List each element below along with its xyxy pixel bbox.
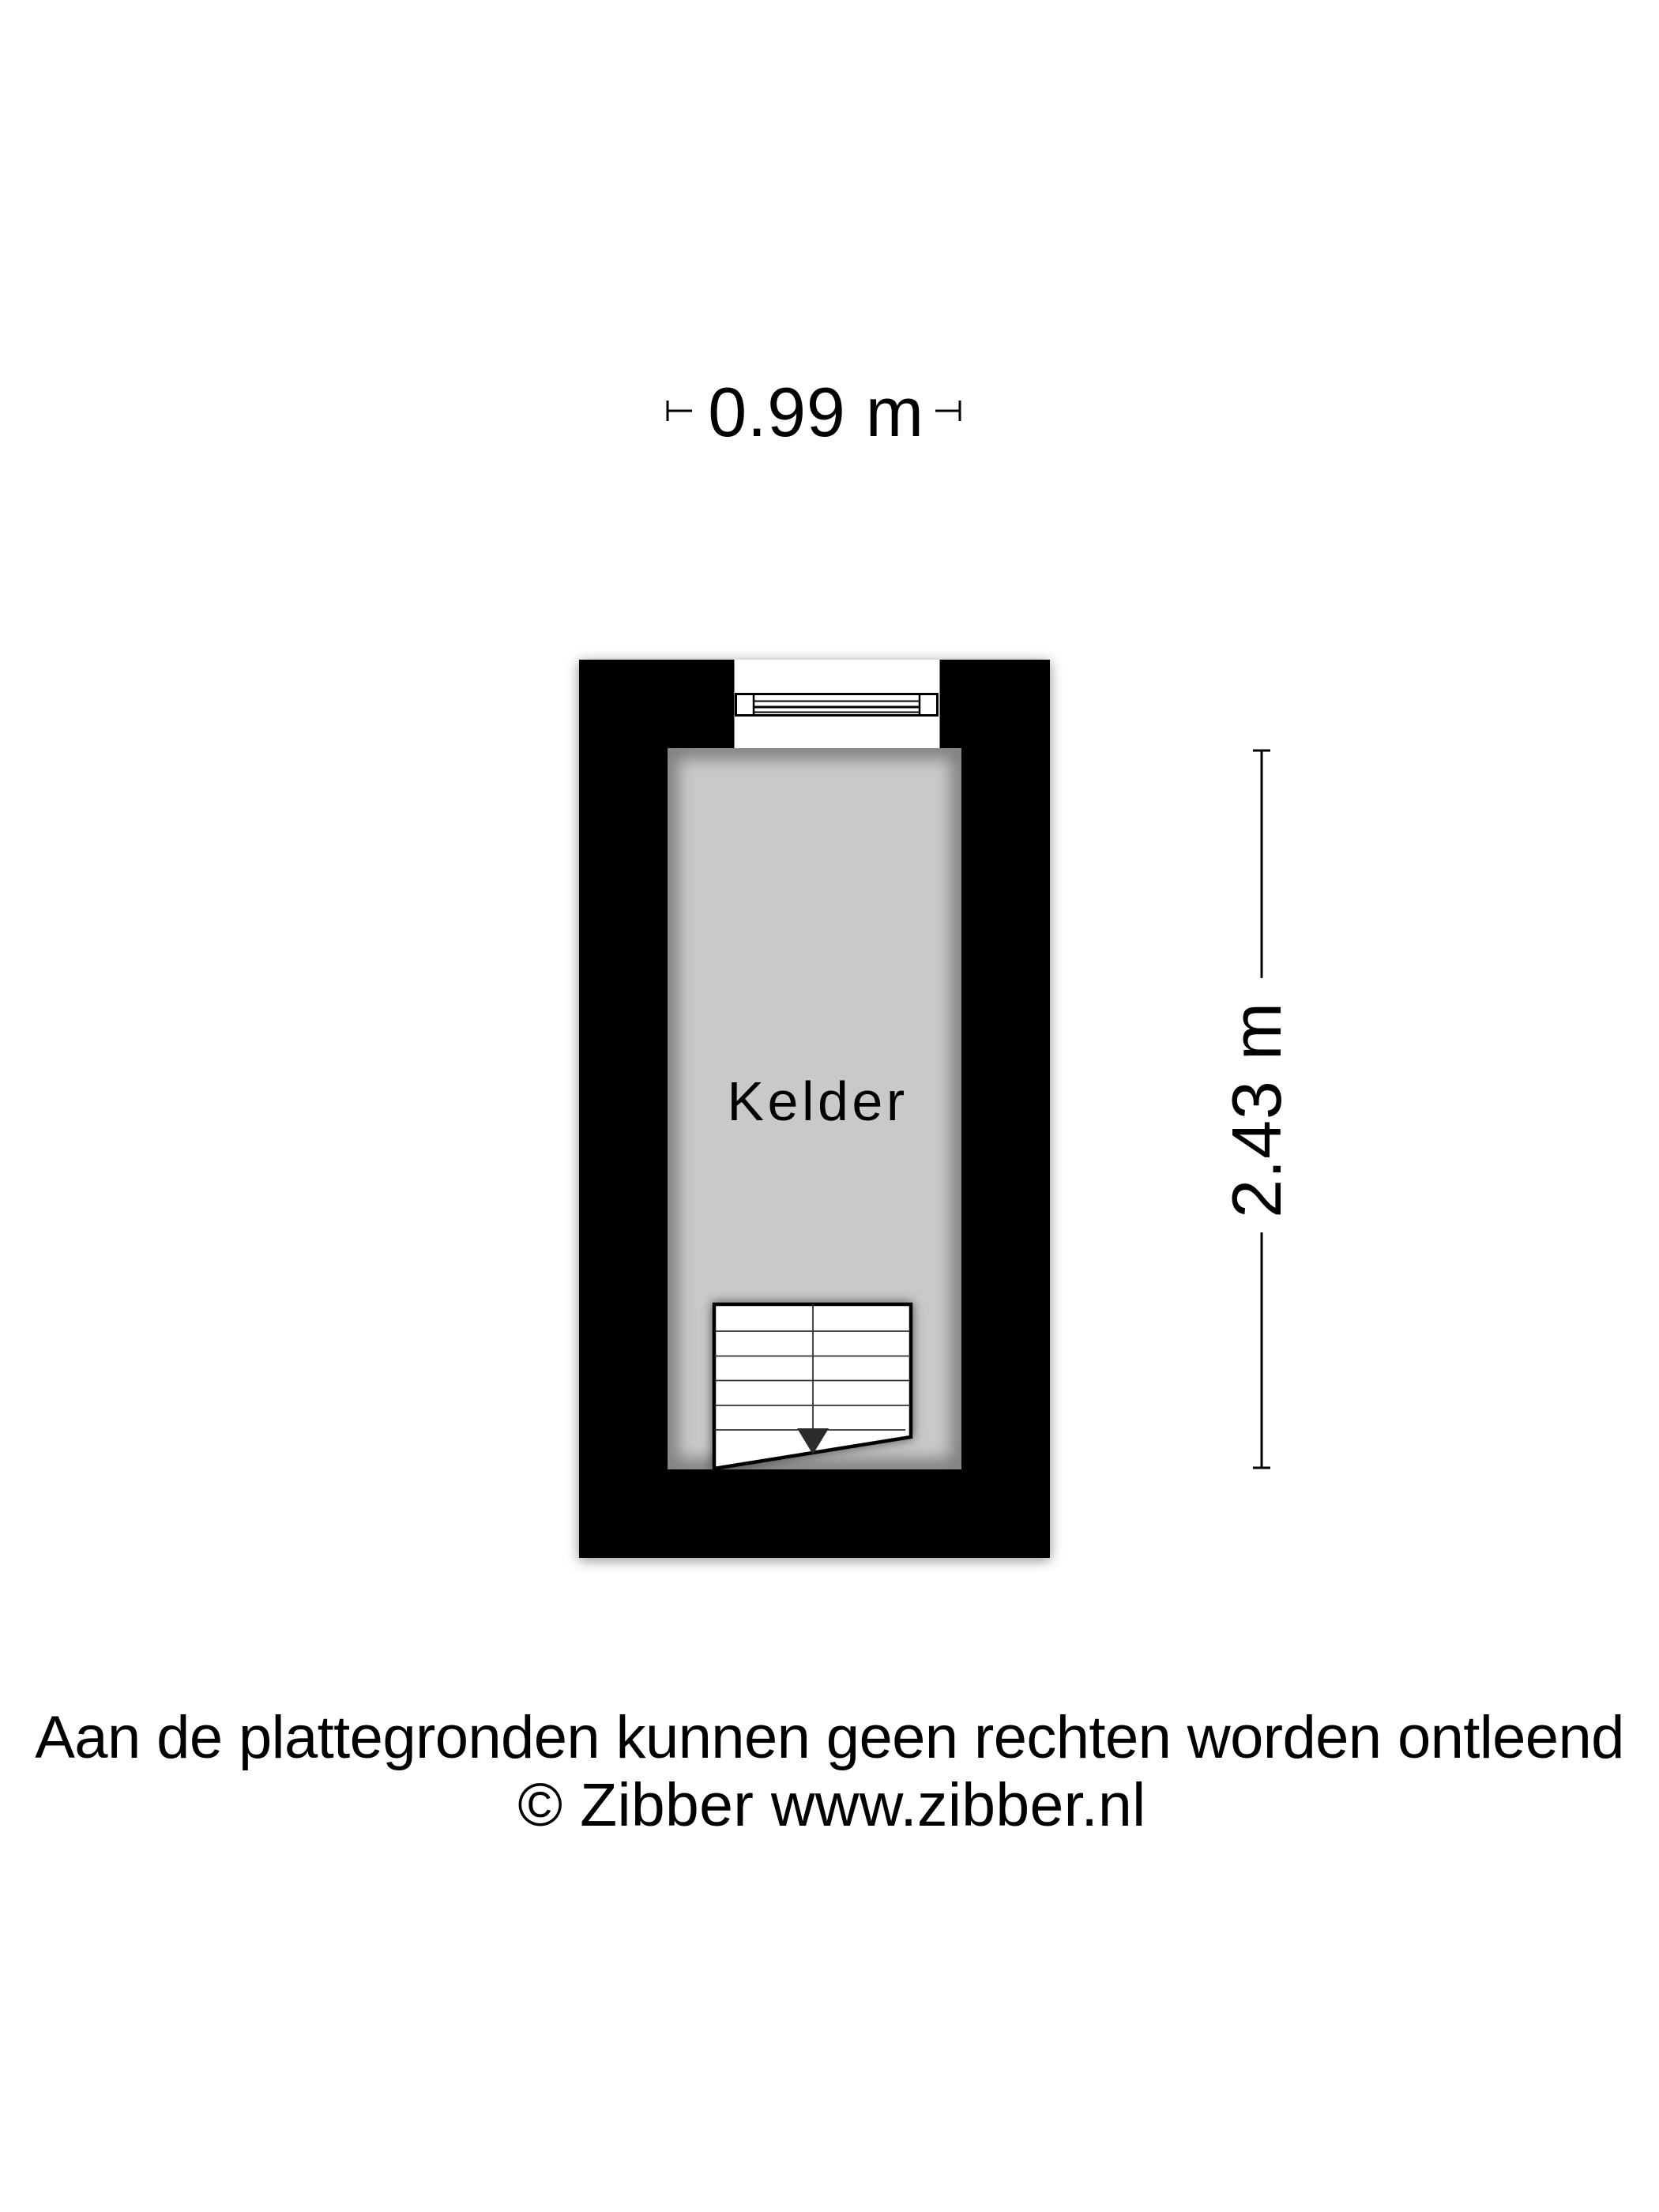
svg-text:Aan de plattegronden kunnen ge: Aan de plattegronden kunnen geen rechten… <box>35 1704 1624 1771</box>
svg-text:0.99 m: 0.99 m <box>708 373 924 451</box>
svg-text:2.43 m: 2.43 m <box>1217 1002 1296 1218</box>
svg-text:Kelder: Kelder <box>727 1070 908 1132</box>
svg-text:© Zibber www.zibber.nl: © Zibber www.zibber.nl <box>517 1771 1145 1839</box>
